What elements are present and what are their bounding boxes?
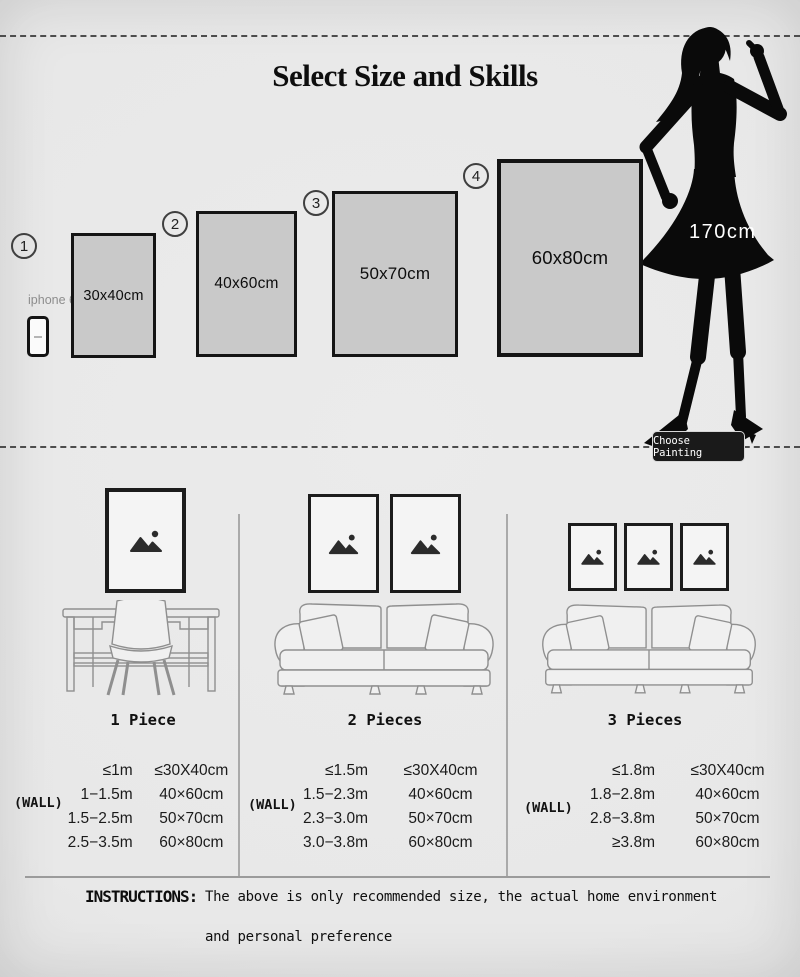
wall-frame	[105, 488, 186, 593]
image-placeholder-icon	[636, 548, 661, 566]
image-placeholder-icon	[692, 548, 717, 566]
size-swatch-label: 30x40cm	[83, 288, 143, 304]
choose-painting-button[interactable]: Choose Painting	[652, 431, 745, 462]
wall-range-cell: 1.5−2.5m	[0, 810, 133, 828]
size-number-badge-4: 4	[463, 163, 489, 189]
wall-frame	[308, 494, 379, 593]
image-placeholder-icon	[409, 532, 442, 556]
image-placeholder-icon	[128, 528, 164, 554]
wall-range-cell: ≤1m	[0, 762, 133, 780]
size-cell: 60×80cm	[393, 834, 488, 852]
wall-frame	[680, 523, 729, 591]
table-row: 2.5−3.5m60×80cm	[0, 831, 238, 855]
table-row: 3.0−3.8m60×80cm	[240, 831, 508, 855]
piece-count-label: 3 Pieces	[585, 711, 705, 729]
image-placeholder-icon	[327, 532, 360, 556]
table-row: 2.8−3.8m50×70cm	[508, 807, 800, 831]
wall-range-cell: ≤1.5m	[240, 762, 368, 780]
piece-count-label: 1 Piece	[83, 711, 203, 729]
wall-range-cell: 1.5−2.3m	[240, 786, 368, 804]
phone-icon	[27, 316, 49, 357]
size-swatch-40x60[interactable]: 40x60cm	[196, 211, 297, 357]
size-table-1: ≤1m≤30X40cm 1−1.5m40×60cm 1.5−2.5m50×70c…	[0, 759, 238, 855]
table-row: 1.5−2.3m40×60cm	[240, 783, 508, 807]
table-row: 1−1.5m40×60cm	[0, 783, 238, 807]
size-swatch-label: 60x80cm	[532, 247, 608, 269]
size-cell: ≤30X40cm	[393, 762, 488, 780]
badge-number: 4	[472, 168, 480, 185]
wall-range-cell: 2.5−3.5m	[0, 834, 133, 852]
table-row: ≤1.8m≤30X40cm	[508, 759, 800, 783]
instructions-label: INSTRUCTIONS:	[85, 887, 197, 906]
size-cell: 50×70cm	[145, 810, 238, 828]
size-swatch-label: 40x60cm	[214, 275, 278, 293]
wall-frame	[390, 494, 461, 593]
wall-range-cell: 2.3−3.0m	[240, 810, 368, 828]
wall-frame	[624, 523, 673, 591]
wall-range-cell: 1−1.5m	[0, 786, 133, 804]
size-swatch-label: 50x70cm	[360, 264, 430, 284]
badge-number: 2	[171, 216, 179, 233]
size-number-badge-2: 2	[162, 211, 188, 237]
instructions-text-line2: and personal preference	[205, 929, 392, 945]
size-cell: 40×60cm	[393, 786, 488, 804]
size-guide-page: Select Size and Skills 1 2 3 4 iphone 6 …	[0, 0, 800, 977]
size-swatch-50x70[interactable]: 50x70cm	[332, 191, 458, 357]
desk-chair-illustration	[60, 600, 222, 698]
bottom-rule	[25, 876, 770, 878]
size-table-2: ≤1.5m≤30X40cm 1.5−2.3m40×60cm 2.3−3.0m50…	[240, 759, 508, 855]
sofa-illustration	[536, 596, 762, 698]
wall-range-cell: 3.0−3.8m	[240, 834, 368, 852]
size-cell: ≤30X40cm	[145, 762, 238, 780]
badge-number: 3	[312, 195, 320, 212]
size-cell: 60×80cm	[145, 834, 238, 852]
size-cell: 40×60cm	[145, 786, 238, 804]
wall-range-cell: 2.8−3.8m	[508, 810, 655, 828]
table-row: 1.5−2.5m50×70cm	[0, 807, 238, 831]
size-cell: ≤30X40cm	[680, 762, 775, 780]
wall-range-cell: 1.8−2.8m	[508, 786, 655, 804]
size-number-badge-3: 3	[303, 190, 329, 216]
table-row: ≤1.5m≤30X40cm	[240, 759, 508, 783]
size-table-3: ≤1.8m≤30X40cm 1.8−2.8m40×60cm 2.8−3.8m50…	[508, 759, 800, 855]
wall-frame	[568, 523, 617, 591]
badge-number: 1	[20, 238, 28, 255]
table-row: 1.8−2.8m40×60cm	[508, 783, 800, 807]
size-number-badge-1: 1	[11, 233, 37, 259]
table-row: 2.3−3.0m50×70cm	[240, 807, 508, 831]
table-row: ≤1m≤30X40cm	[0, 759, 238, 783]
wall-range-cell: ≤1.8m	[508, 762, 655, 780]
size-cell: 40×60cm	[680, 786, 775, 804]
image-placeholder-icon	[580, 548, 605, 566]
piece-count-label: 2 Pieces	[325, 711, 445, 729]
size-swatch-30x40[interactable]: 30x40cm	[71, 233, 156, 358]
sofa-illustration	[266, 596, 502, 698]
size-cell: 60×80cm	[680, 834, 775, 852]
instructions-text-line1: The above is only recommended size, the …	[205, 889, 717, 905]
size-swatch-60x80[interactable]: 60x80cm	[497, 159, 643, 357]
table-row: ≥3.8m60×80cm	[508, 831, 800, 855]
size-cell: 50×70cm	[393, 810, 488, 828]
model-height-label: 170cm	[689, 221, 757, 244]
wall-range-cell: ≥3.8m	[508, 834, 655, 852]
size-cell: 50×70cm	[680, 810, 775, 828]
choose-painting-label: Choose Painting	[653, 435, 744, 459]
